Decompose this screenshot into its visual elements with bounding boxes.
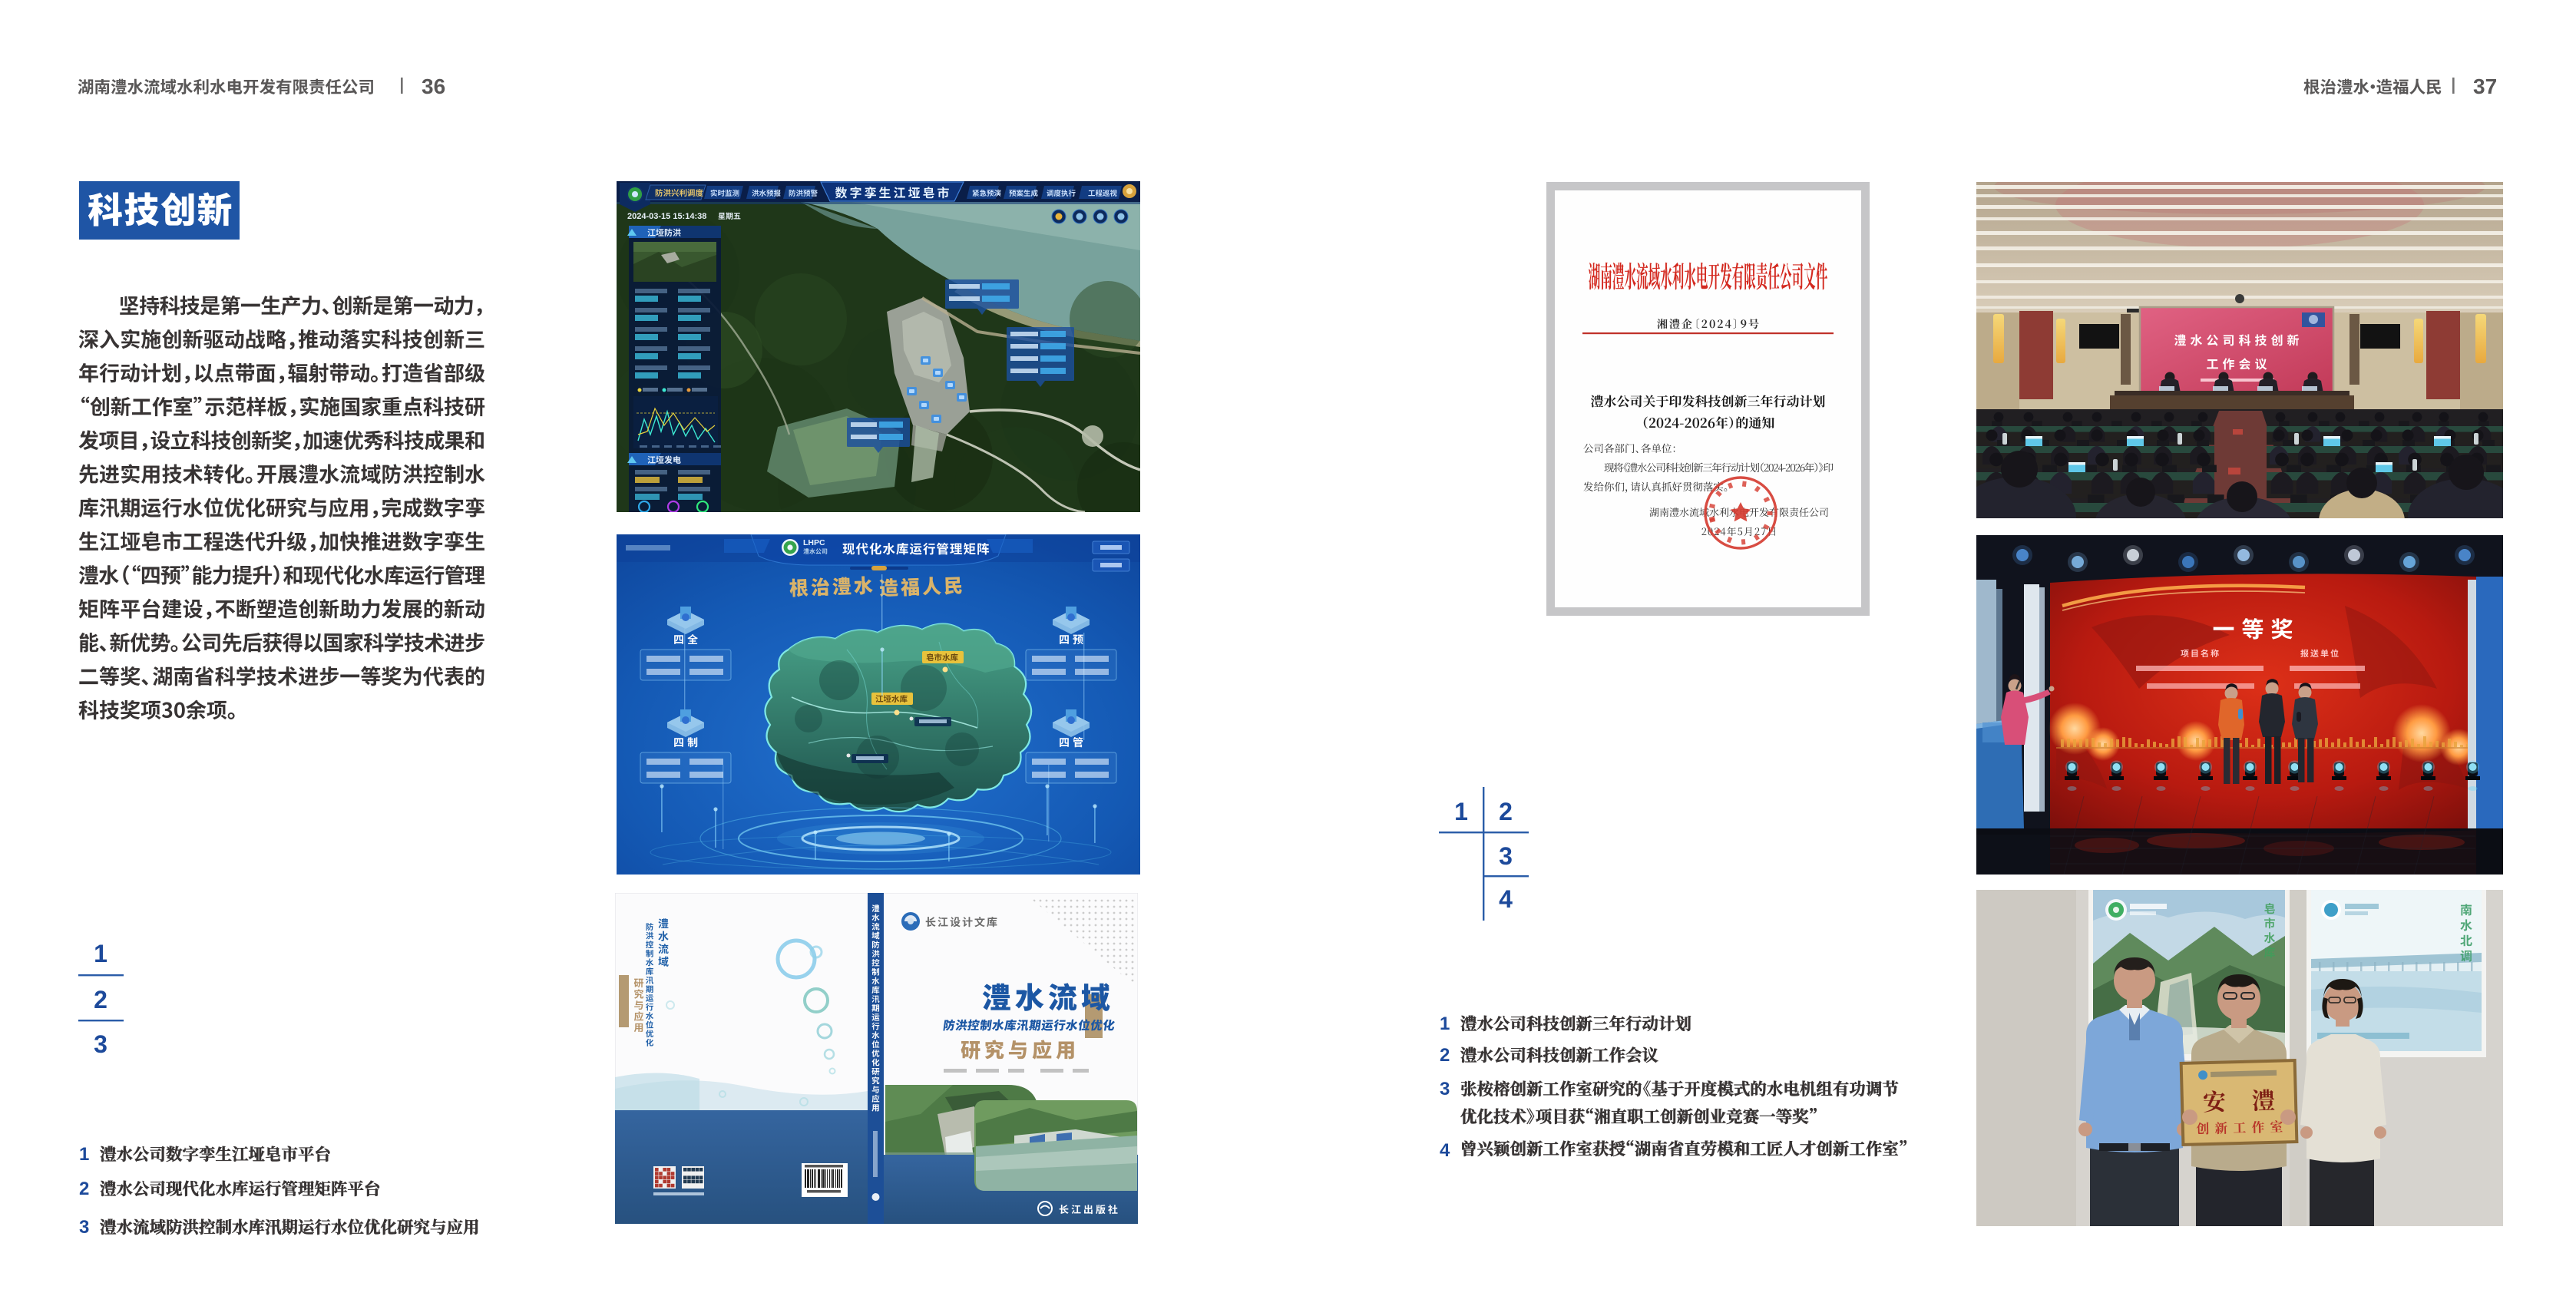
- svg-text:1: 1: [94, 940, 107, 967]
- svg-text:4: 4: [1499, 885, 1513, 913]
- svg-text:2: 2: [79, 1179, 89, 1199]
- svg-text:2: 2: [94, 986, 107, 1013]
- svg-text:1: 1: [1454, 798, 1468, 825]
- svg-text:2024-03-15 15:14:38: 2024-03-15 15:14:38: [627, 212, 706, 221]
- svg-text:3: 3: [94, 1030, 107, 1058]
- svg-text:2: 2: [1499, 798, 1513, 825]
- svg-text:1: 1: [1440, 1013, 1450, 1034]
- svg-text:4: 4: [1440, 1140, 1450, 1161]
- svg-text:LHPC: LHPC: [803, 538, 825, 547]
- svg-text:36: 36: [422, 74, 445, 98]
- svg-text:2: 2: [1440, 1045, 1450, 1066]
- svg-text:3: 3: [79, 1217, 89, 1238]
- svg-text:3: 3: [1499, 842, 1513, 870]
- svg-text:1: 1: [79, 1144, 89, 1165]
- svg-text:37: 37: [2473, 74, 2497, 98]
- svg-text:3: 3: [1440, 1079, 1450, 1099]
